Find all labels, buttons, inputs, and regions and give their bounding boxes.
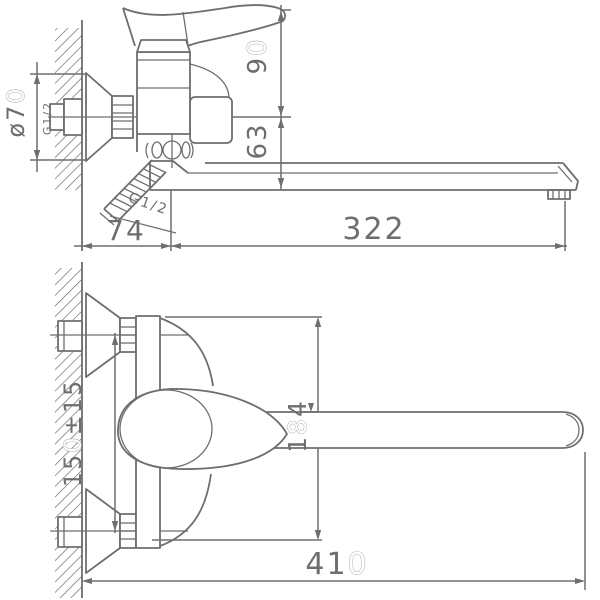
front-view: 150±15 184 410 — [50, 262, 585, 598]
technical-drawing-page: ø70 G1/2 90 63 G1/2 74 322 — [0, 0, 600, 600]
lower-body-dome — [160, 474, 211, 546]
side-view: ø70 G1/2 90 63 G1/2 74 322 — [2, 5, 578, 251]
dim-184-label: 184 — [283, 399, 312, 453]
wall-thread-label: G1/2 — [41, 101, 54, 135]
dim-63-label: 63 — [243, 122, 273, 159]
upper-body-dome — [160, 318, 213, 386]
dim-phi70-label: ø70 — [2, 86, 30, 137]
faucet-dimension-drawing: ø70 G1/2 90 63 G1/2 74 322 — [0, 0, 600, 600]
dim-322-label: 322 — [342, 212, 405, 247]
spout-tip — [563, 163, 578, 190]
dim-150-label: 150±15 — [59, 379, 87, 487]
dim-90-label: 90 — [243, 37, 273, 74]
dim-410-label: 410 — [305, 547, 368, 582]
faucet-body-side — [137, 40, 232, 152]
cartridge-column — [137, 52, 190, 134]
dim-74-label: 74 — [106, 214, 146, 247]
cartridge-cap — [137, 40, 190, 52]
swivel-joint — [146, 133, 193, 168]
spout-side — [150, 161, 578, 199]
inlet-housing — [190, 97, 232, 143]
lever-handle-front — [118, 389, 287, 469]
